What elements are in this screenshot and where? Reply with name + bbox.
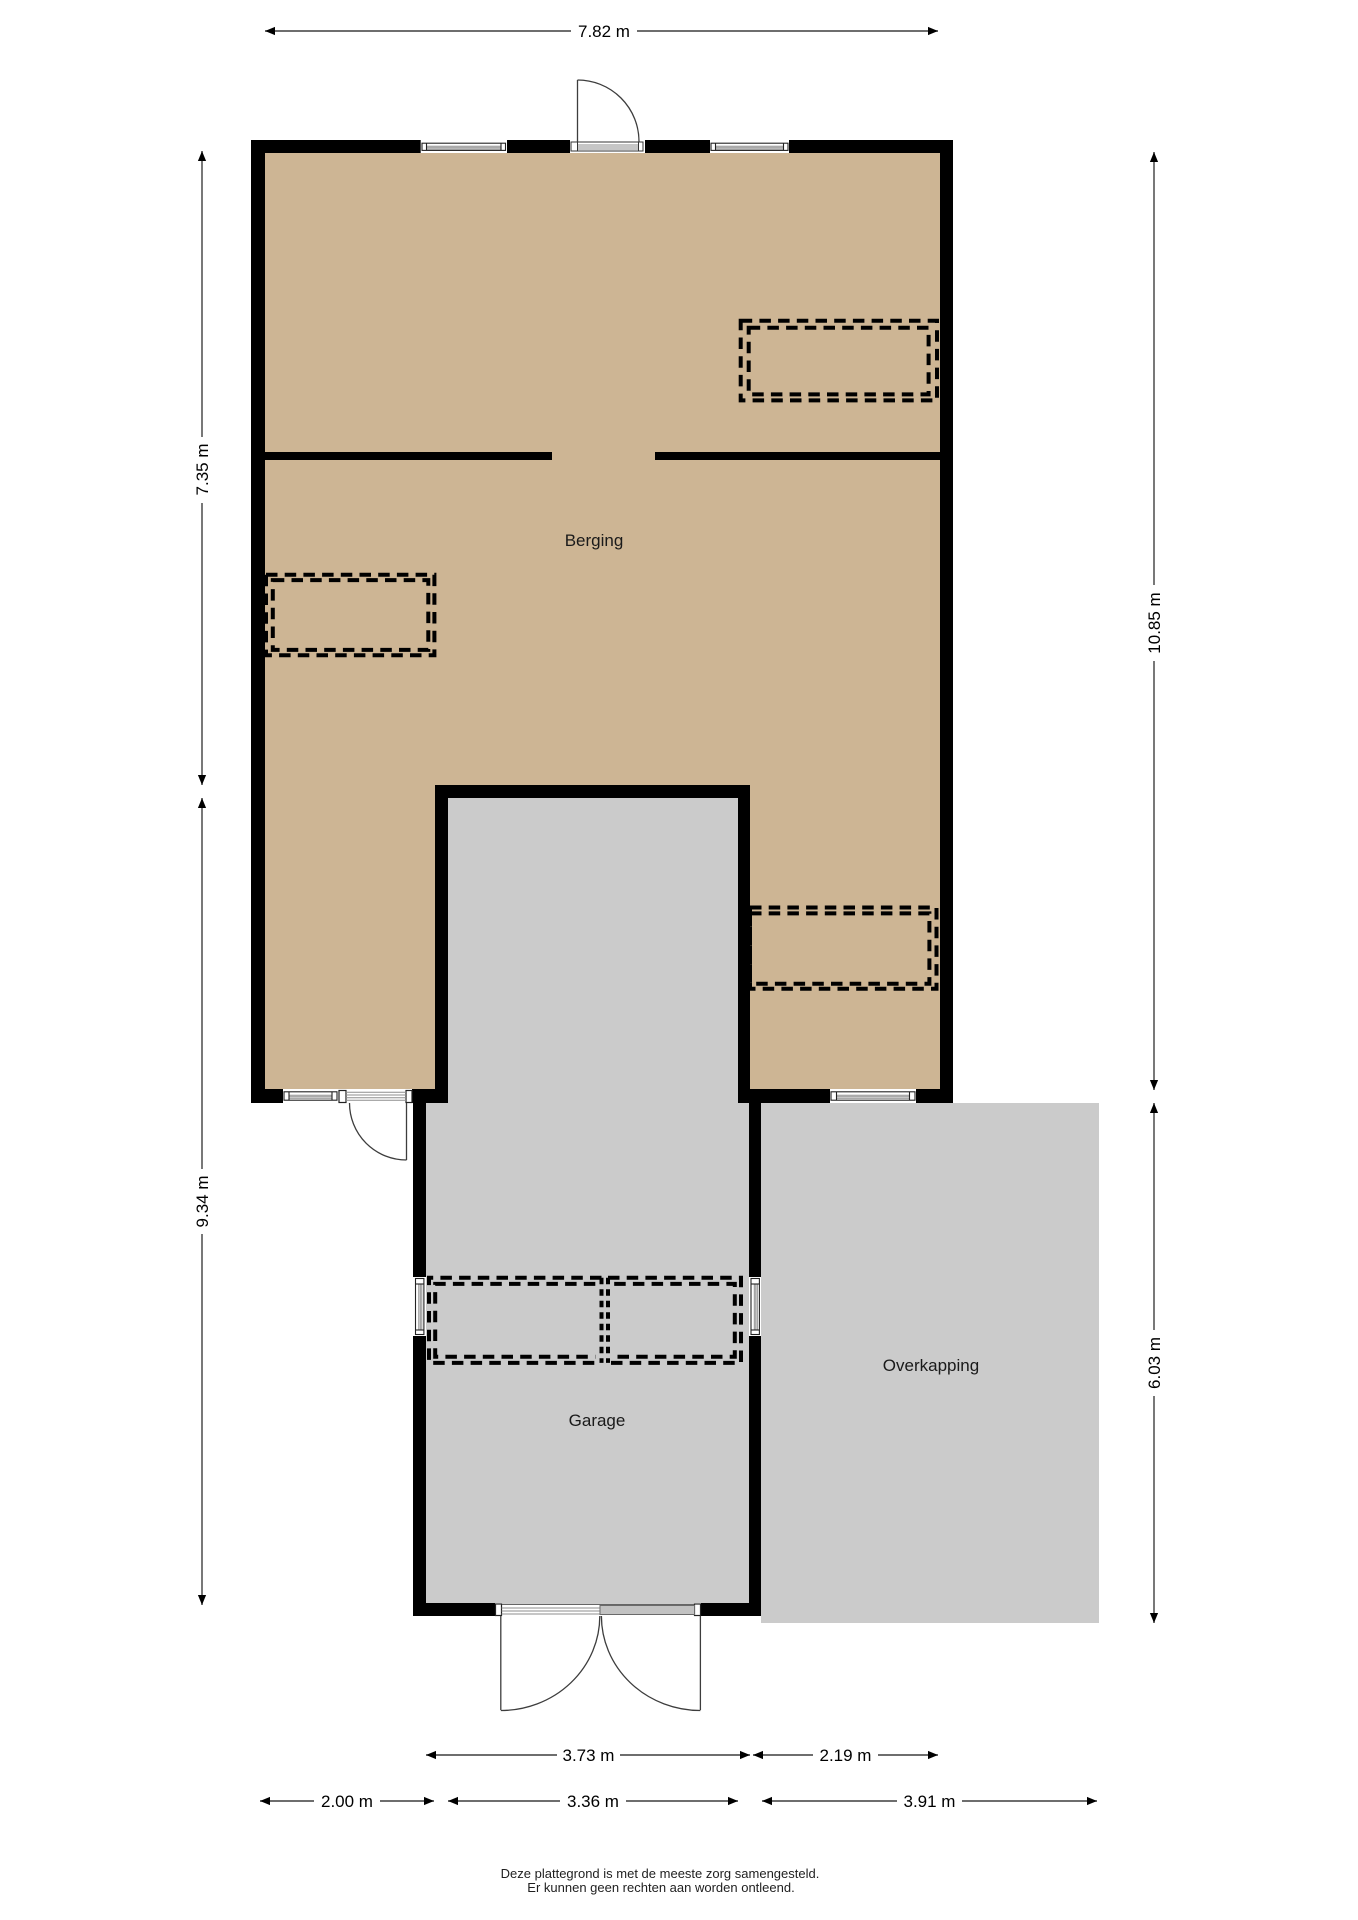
svg-text:2.19 m: 2.19 m xyxy=(820,1746,872,1765)
svg-text:7.82 m: 7.82 m xyxy=(578,22,630,41)
svg-text:6.03 m: 6.03 m xyxy=(1145,1337,1164,1389)
svg-text:3.91 m: 3.91 m xyxy=(904,1792,956,1811)
svg-text:Deze plattegrond is met de mee: Deze plattegrond is met de meeste zorg s… xyxy=(501,1866,820,1881)
svg-text:Garage: Garage xyxy=(569,1411,626,1430)
svg-text:3.73 m: 3.73 m xyxy=(563,1746,615,1765)
svg-text:Overkapping: Overkapping xyxy=(883,1356,979,1375)
svg-text:Er kunnen geen rechten aan wor: Er kunnen geen rechten aan worden ontlee… xyxy=(527,1880,794,1895)
svg-text:Berging: Berging xyxy=(565,531,624,550)
svg-text:9.34 m: 9.34 m xyxy=(193,1176,212,1228)
svg-text:3.36 m: 3.36 m xyxy=(567,1792,619,1811)
svg-text:2.00 m: 2.00 m xyxy=(321,1792,373,1811)
svg-text:10.85 m: 10.85 m xyxy=(1145,592,1164,653)
svg-text:7.35 m: 7.35 m xyxy=(193,444,212,496)
